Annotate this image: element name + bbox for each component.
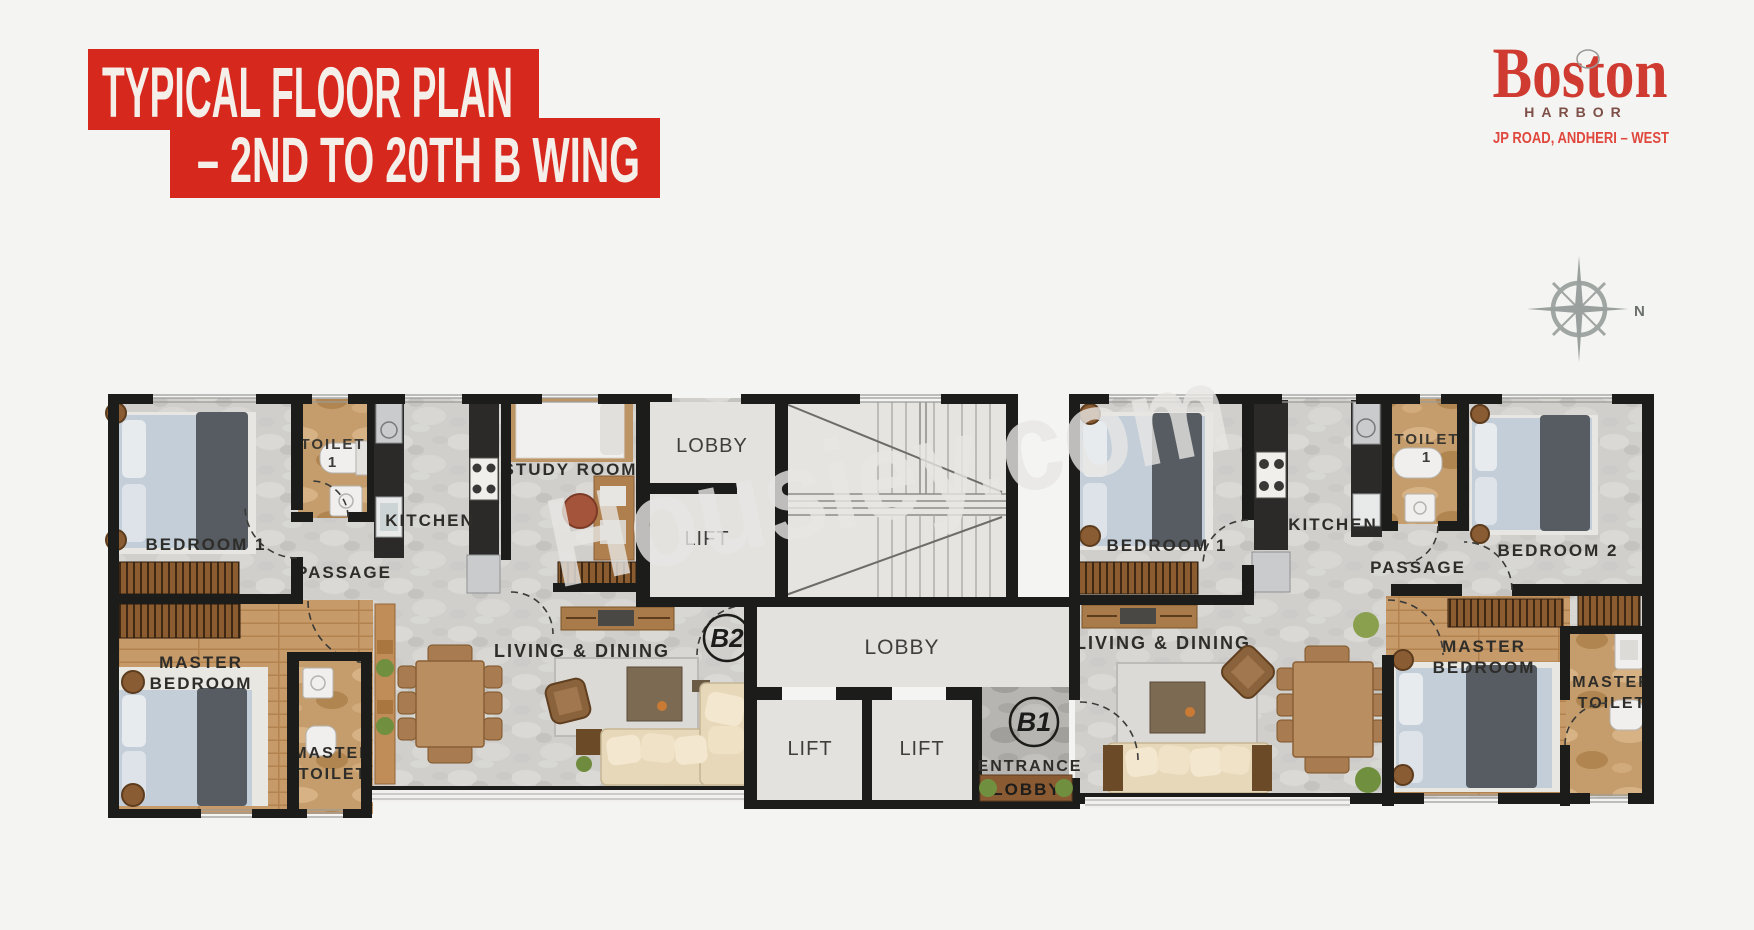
svg-text:LIFT: LIFT <box>899 738 944 760</box>
svg-text:HARBOR: HARBOR <box>1524 104 1627 120</box>
svg-text:MASTER: MASTER <box>293 745 373 762</box>
svg-text:PASSAGE: PASSAGE <box>296 563 392 582</box>
svg-text:LOBBY: LOBBY <box>992 780 1062 799</box>
svg-text:BEDROOM 2: BEDROOM 2 <box>1498 541 1619 560</box>
svg-text:LIVING & DINING: LIVING & DINING <box>494 641 670 661</box>
svg-text:TOILET: TOILET <box>1578 695 1647 712</box>
svg-text:TOILET: TOILET <box>1394 431 1459 448</box>
svg-text:PASSAGE: PASSAGE <box>1370 558 1466 577</box>
svg-text:KITCHEN: KITCHEN <box>1288 515 1378 534</box>
svg-text:BEDROOM 1: BEDROOM 1 <box>146 535 267 554</box>
svg-text:MASTER: MASTER <box>1442 637 1526 656</box>
svg-text:TYPICAL FLOOR PLAN: TYPICAL FLOOR PLAN <box>102 54 513 133</box>
svg-text:B2: B2 <box>710 623 744 653</box>
svg-text:N: N <box>1634 303 1645 320</box>
svg-text:TOILET: TOILET <box>300 436 365 453</box>
svg-text:1: 1 <box>1422 449 1432 466</box>
svg-text:KITCHEN: KITCHEN <box>385 511 475 530</box>
svg-text:JP ROAD, ANDHERI – WEST: JP ROAD, ANDHERI – WEST <box>1493 130 1669 147</box>
svg-text:B1: B1 <box>1017 707 1052 737</box>
svg-text:BEDROOM: BEDROOM <box>150 674 253 693</box>
svg-text:LIVING & DINING: LIVING & DINING <box>1075 633 1251 653</box>
svg-text:LIFT: LIFT <box>787 738 832 760</box>
svg-text:LOBBY: LOBBY <box>864 636 939 659</box>
svg-text:BEDROOM: BEDROOM <box>1433 658 1536 677</box>
svg-text:1: 1 <box>328 454 338 471</box>
svg-text:MASTER: MASTER <box>1572 674 1652 691</box>
svg-text:– 2ND TO 20TH B WING: – 2ND TO 20TH B WING <box>197 124 640 196</box>
svg-text:BEDROOM 1: BEDROOM 1 <box>1107 536 1228 555</box>
svg-text:TOILET: TOILET <box>299 766 368 783</box>
svg-text:Boston: Boston <box>1493 33 1668 113</box>
svg-text:ENTRANCE: ENTRANCE <box>978 758 1083 775</box>
svg-text:MASTER: MASTER <box>159 653 243 672</box>
